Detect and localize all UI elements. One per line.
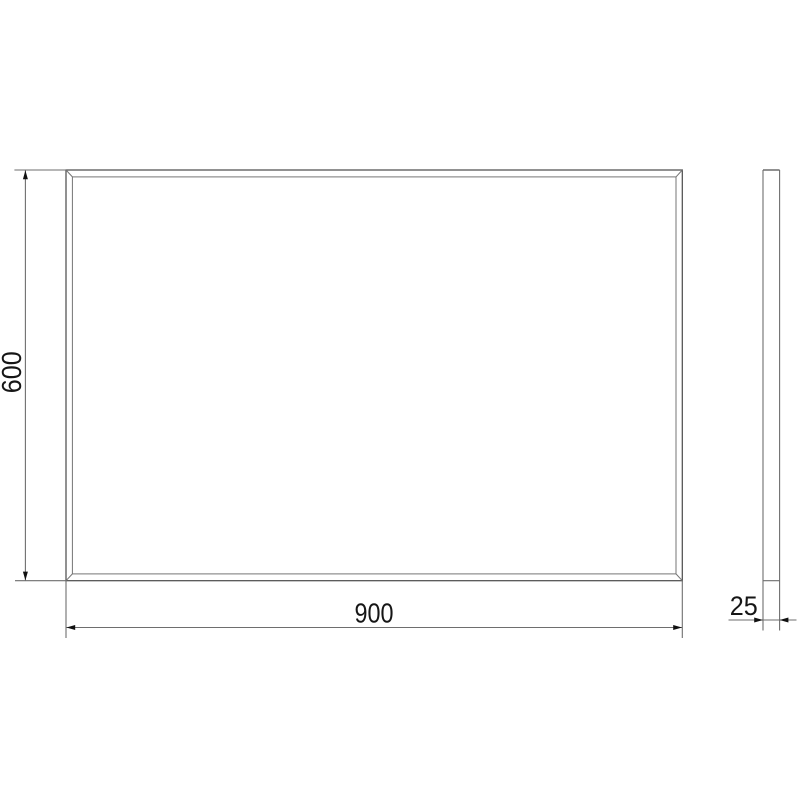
svg-text:600: 600 (0, 351, 27, 393)
svg-text:25: 25 (730, 591, 758, 621)
svg-text:900: 900 (355, 598, 394, 629)
